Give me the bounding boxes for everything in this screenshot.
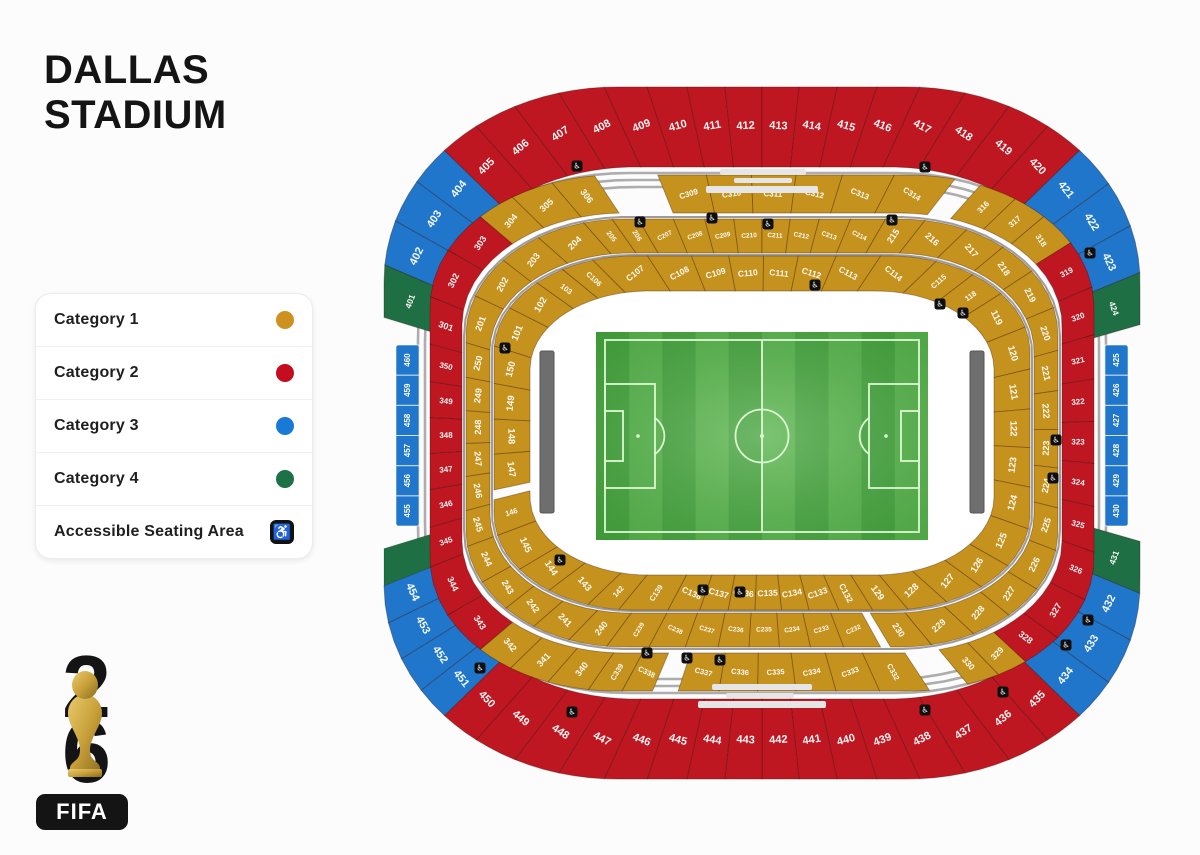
accessible-seating-icon: ♿ [920,705,931,716]
section-label-149: 149 [505,395,518,412]
legend-item-label: Category 4 [54,470,139,488]
accessible-seating-icon: ♿ [735,587,746,598]
svg-text:♿: ♿ [921,163,928,172]
svg-text:♿: ♿ [959,309,966,318]
section-label-429: 429 [1112,474,1121,488]
section-label-C211: C211 [767,232,783,240]
legend-item: Accessible Seating Area♿ [36,505,312,558]
category-color-dot [276,364,294,382]
section-label-C111: C111 [769,267,790,279]
svg-text:♿: ♿ [636,218,643,227]
section-label-455: 455 [403,504,412,518]
svg-text:♿: ♿ [764,220,771,229]
section-label-C335: C335 [766,667,784,677]
svg-text:♿: ♿ [921,706,928,715]
section-label-412: 412 [736,120,755,133]
svg-text:♿: ♿ [1084,616,1091,625]
section-label-323: 323 [1071,437,1085,446]
svg-text:♿: ♿ [708,214,715,223]
section-label-426: 426 [1112,383,1121,397]
accessible-seating-icon: ♿ [887,215,898,226]
section-label-347: 347 [439,464,454,475]
legend-item: Category 2 [36,346,312,399]
svg-text:♿: ♿ [1052,436,1059,445]
fifa-wordmark: FIFA [36,794,128,830]
svg-text:♿: ♿ [716,656,723,665]
svg-text:♿: ♿ [699,586,706,595]
concourse-sign [698,701,826,708]
seat-map-page: 4014024034044054064074084094104114124134… [0,0,1200,855]
world-cup-trophy-icon [57,668,113,778]
category-color-dot [276,470,294,488]
title-line2: STADIUM [44,93,227,137]
svg-text:♿: ♿ [573,162,580,171]
section-label-223: 223 [1041,440,1052,456]
section-label-C110: C110 [737,267,758,279]
accessible-seating-icon: ♿ [698,585,709,596]
accessible-seating-icon: ♿ [958,308,969,319]
svg-text:♿: ♿ [888,216,895,225]
accessible-seating-icon: ♿ [500,343,511,354]
accessible-seating-icon: ♿ [920,162,931,173]
accessible-seating-icon: ♿ [1048,473,1059,484]
accessible-seating-icon: ♿ [935,299,946,310]
svg-text:♿: ♿ [1049,474,1056,483]
accessible-seating-icon: ♿ [707,213,718,224]
title-line1: DALLAS [44,48,209,92]
section-label-123: 123 [1007,457,1020,474]
legend-item: Category 1 [36,294,312,346]
section-label-430: 430 [1112,504,1121,518]
svg-text:♿: ♿ [568,708,575,717]
section-label-456: 456 [403,474,412,488]
accessible-seating-icon: ♿ [635,217,646,228]
section-label-147: 147 [504,461,517,478]
concourse-sign [706,186,818,193]
accessible-seating-icon: ♿ [1083,615,1094,626]
svg-text:♿: ♿ [811,281,818,290]
svg-text:♿: ♿ [556,556,563,565]
concourse-sign [712,684,812,690]
section-label-458: 458 [403,413,412,427]
svg-text:♿: ♿ [936,300,943,309]
section-label-349: 349 [439,396,454,406]
svg-text:♿: ♿ [643,649,650,658]
pitch [596,332,928,540]
svg-text:♿: ♿ [736,588,743,597]
category-color-dot [276,417,294,435]
section-label-222: 222 [1040,403,1051,419]
section-label-460: 460 [403,353,412,367]
accessible-seating-icon: ♿ [998,687,1009,698]
accessible-seating-icon: ♿ [572,161,583,172]
legend: Category 1Category 2Category 3Category 4… [35,293,313,559]
accessible-seating-icon: ♿ [555,555,566,566]
svg-text:♿: ♿ [683,654,690,663]
accessible-seating-icon: ♿ [1085,248,1096,259]
accessible-seating-icon: ♿ [682,653,693,664]
section-label-427: 427 [1112,413,1121,427]
concourse-sign [726,693,794,698]
section-label-249: 249 [472,387,484,403]
svg-text:♿: ♿ [476,664,483,673]
suite-bar-east [970,351,984,513]
svg-text:♿: ♿ [999,688,1006,697]
legend-item-label: Category 2 [54,364,139,382]
wheelchair-icon: ♿ [270,520,294,544]
section-label-348: 348 [439,431,453,440]
svg-text:♿: ♿ [501,344,508,353]
accessible-seating-icon: ♿ [567,707,578,718]
accessible-seating-icon: ♿ [1061,640,1072,651]
accessible-seating-icon: ♿ [763,219,774,230]
section-label-148: 148 [505,428,516,444]
legend-item-label: Accessible Seating Area [54,523,244,541]
section-label-C210: C210 [741,232,757,240]
accessible-seating-icon: ♿ [715,655,726,666]
section-label-442: 442 [769,734,788,747]
svg-text:♿: ♿ [1086,249,1093,258]
concourse-sign [734,178,792,183]
legend-item: Category 3 [36,399,312,452]
section-label-C336: C336 [731,667,750,678]
legend-item: Category 4 [36,452,312,505]
legend-item-label: Category 1 [54,311,139,329]
section-label-428: 428 [1112,443,1121,457]
section-label-C135: C135 [757,588,778,599]
section-label-459: 459 [403,383,412,397]
accessible-seating-icon: ♿ [810,280,821,291]
suite-bar-west [540,351,554,513]
section-label-457: 457 [403,443,412,457]
category-color-dot [276,311,294,329]
section-label-443: 443 [736,734,755,747]
page-title: DALLASSTADIUM [44,48,227,138]
concourse-sign [720,169,806,175]
section-label-248: 248 [473,420,483,435]
legend-item-label: Category 3 [54,417,139,435]
section-label-122: 122 [1007,421,1018,437]
section-label-322: 322 [1071,397,1086,407]
accessible-seating-icon: ♿ [1051,435,1062,446]
section-label-C235: C235 [756,626,772,633]
accessible-seating-icon: ♿ [642,648,653,659]
section-label-425: 425 [1112,353,1121,367]
section-label-247: 247 [472,451,483,467]
svg-text:♿: ♿ [1062,641,1069,650]
section-label-413: 413 [769,120,788,133]
accessible-seating-icon: ♿ [475,663,486,674]
fifa-world-cup-26-logo: 26 FIFA [30,660,140,836]
